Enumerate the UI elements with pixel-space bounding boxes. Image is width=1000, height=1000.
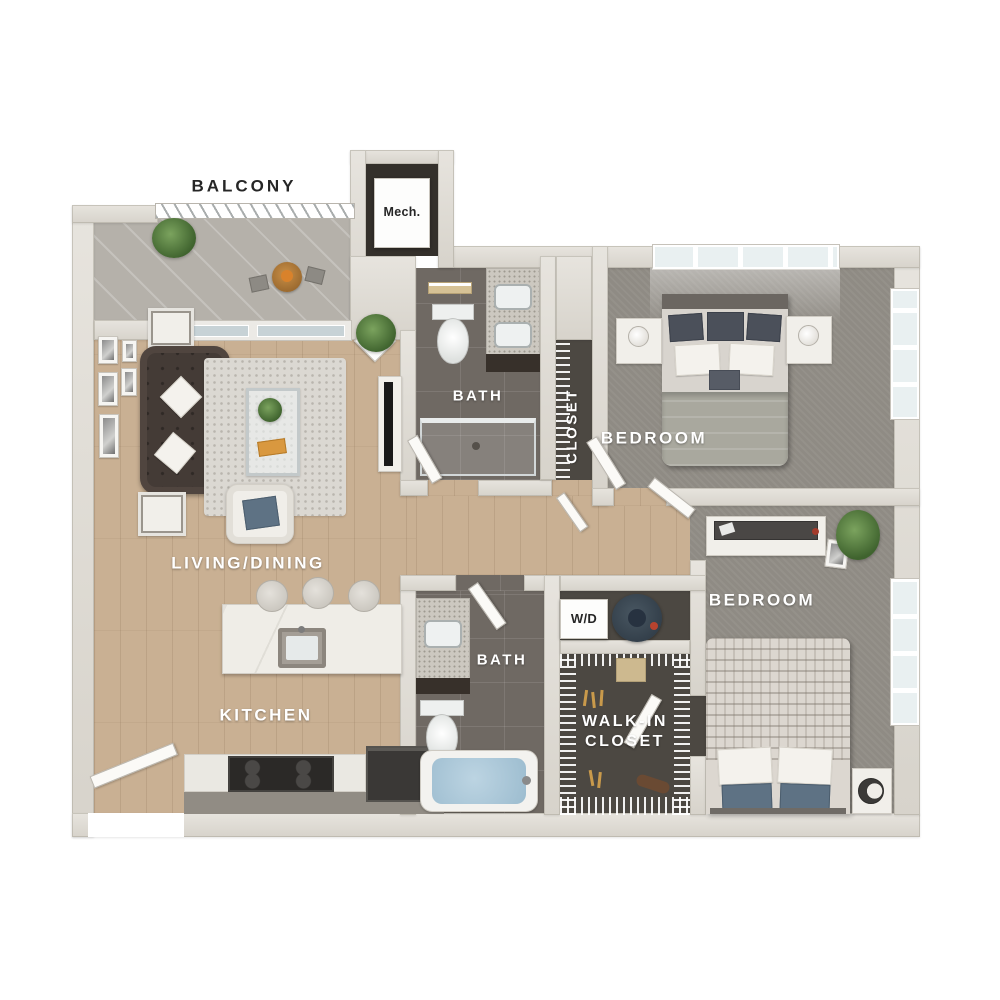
bedroom-upper-label: BEDROOM — [601, 427, 707, 448]
wall-art — [98, 372, 118, 406]
balcony-label: BALCONY — [191, 175, 296, 196]
side-table-north — [148, 308, 194, 348]
vanity-upper-sink — [494, 322, 532, 348]
shower-drain — [472, 442, 480, 450]
closet-door-threshold — [552, 480, 592, 496]
lamp — [628, 326, 649, 347]
bar-stool — [348, 580, 380, 612]
lamp — [798, 325, 819, 346]
wall-laundry-top — [560, 575, 706, 591]
bed-base — [710, 808, 846, 814]
island-faucet — [298, 626, 305, 633]
wall-art — [98, 336, 118, 364]
bath-lower-label: BATH — [477, 652, 528, 671]
wall-bath-laundry — [544, 575, 560, 815]
console-red-accent — [812, 528, 819, 535]
living-dining-label: LIVING/DINING — [171, 552, 324, 573]
washer: W/D — [560, 599, 608, 639]
knit-blanket — [706, 638, 850, 760]
vanity-upper-sink — [494, 284, 532, 310]
wall-closet-head — [556, 256, 592, 340]
pillow-dark — [668, 313, 704, 342]
coffee-table-plant — [258, 398, 282, 422]
bedroom-lower-plant — [836, 510, 880, 560]
vanity-upper-base — [486, 354, 540, 372]
wall-bath-lower-top-a — [400, 575, 456, 591]
wall-laundry-walkin — [560, 640, 690, 654]
laundry-red-item — [650, 622, 658, 630]
bathtub-water — [432, 758, 526, 804]
mech-unit: Mech. — [374, 178, 430, 248]
side-table-south — [138, 492, 186, 536]
pillow-accent — [709, 370, 740, 390]
accent-chair-pillow — [242, 496, 280, 530]
bathtub-faucet — [522, 776, 531, 785]
tv — [384, 382, 393, 466]
entry-door-opening — [88, 813, 184, 837]
headboard — [662, 294, 788, 309]
bed-lower — [706, 638, 850, 814]
wall-bedroom-upper-bottom-a — [592, 488, 614, 506]
bath-lower-door-threshold — [456, 575, 524, 591]
hallway-floor — [416, 496, 690, 575]
bedroom-lower-door-threshold — [690, 506, 706, 560]
wall-living-bath — [400, 330, 416, 496]
balcony-plant — [152, 218, 196, 258]
wall-bottom — [72, 813, 920, 837]
wall-hall-bedroom-lower-b — [690, 756, 706, 815]
wall-hall-bath-a — [400, 480, 428, 496]
walkin-shelf-bottom — [560, 797, 690, 815]
bedroom-upper-right-window — [890, 288, 920, 420]
wall-left — [72, 205, 94, 837]
wall-top-left — [72, 205, 158, 223]
walkin-storage-box — [616, 658, 646, 682]
island-sink-basin — [286, 636, 318, 660]
walkin-door-threshold — [690, 696, 706, 756]
pillow-dark — [707, 312, 744, 341]
bath-upper-label: BATH — [453, 388, 504, 407]
wall-mech-right — [438, 150, 454, 268]
closet-label: CLOSET — [564, 388, 583, 464]
living-corner-plant — [356, 314, 396, 352]
pillow-blue — [722, 783, 773, 811]
bedroom-lower-label: BEDROOM — [709, 589, 815, 610]
wall-bath-closet — [540, 256, 556, 480]
towel-bar — [428, 282, 472, 294]
wall-art — [121, 368, 137, 396]
bar-stool — [302, 577, 334, 609]
wall-hall-bath-b — [478, 480, 552, 496]
pillow-light — [717, 747, 773, 786]
mech-label: Mech. — [384, 205, 421, 221]
dryer-door — [628, 609, 646, 627]
wall-art — [99, 414, 119, 458]
bedroom-lower-right-window — [890, 578, 920, 726]
wd-label: W/D — [571, 611, 597, 627]
walk-in-closet-label: WALK-IN CLOSET — [565, 712, 685, 752]
vanity-lower-base — [416, 678, 470, 694]
bedroom-upper-top-window — [652, 244, 840, 270]
wall-art — [122, 340, 137, 362]
balcony-fruit-bowl — [281, 270, 293, 282]
pillow-light — [777, 747, 833, 786]
pillow-blue — [780, 783, 831, 811]
floor-plan: Mech. — [0, 0, 1000, 1000]
balcony-railing — [155, 203, 355, 219]
cooktop — [228, 756, 334, 792]
sliding-door-pane — [257, 325, 345, 337]
wall-bedroom-upper-bottom-b — [666, 488, 920, 506]
pillow-dark — [746, 313, 782, 342]
toilet-bowl — [437, 318, 469, 364]
vanity-lower-sink — [424, 620, 462, 648]
crescent-lamp — [858, 778, 884, 804]
bath-upper-door-threshold — [428, 480, 478, 496]
kitchen-label: KITCHEN — [219, 704, 312, 725]
bar-stool — [256, 580, 288, 612]
